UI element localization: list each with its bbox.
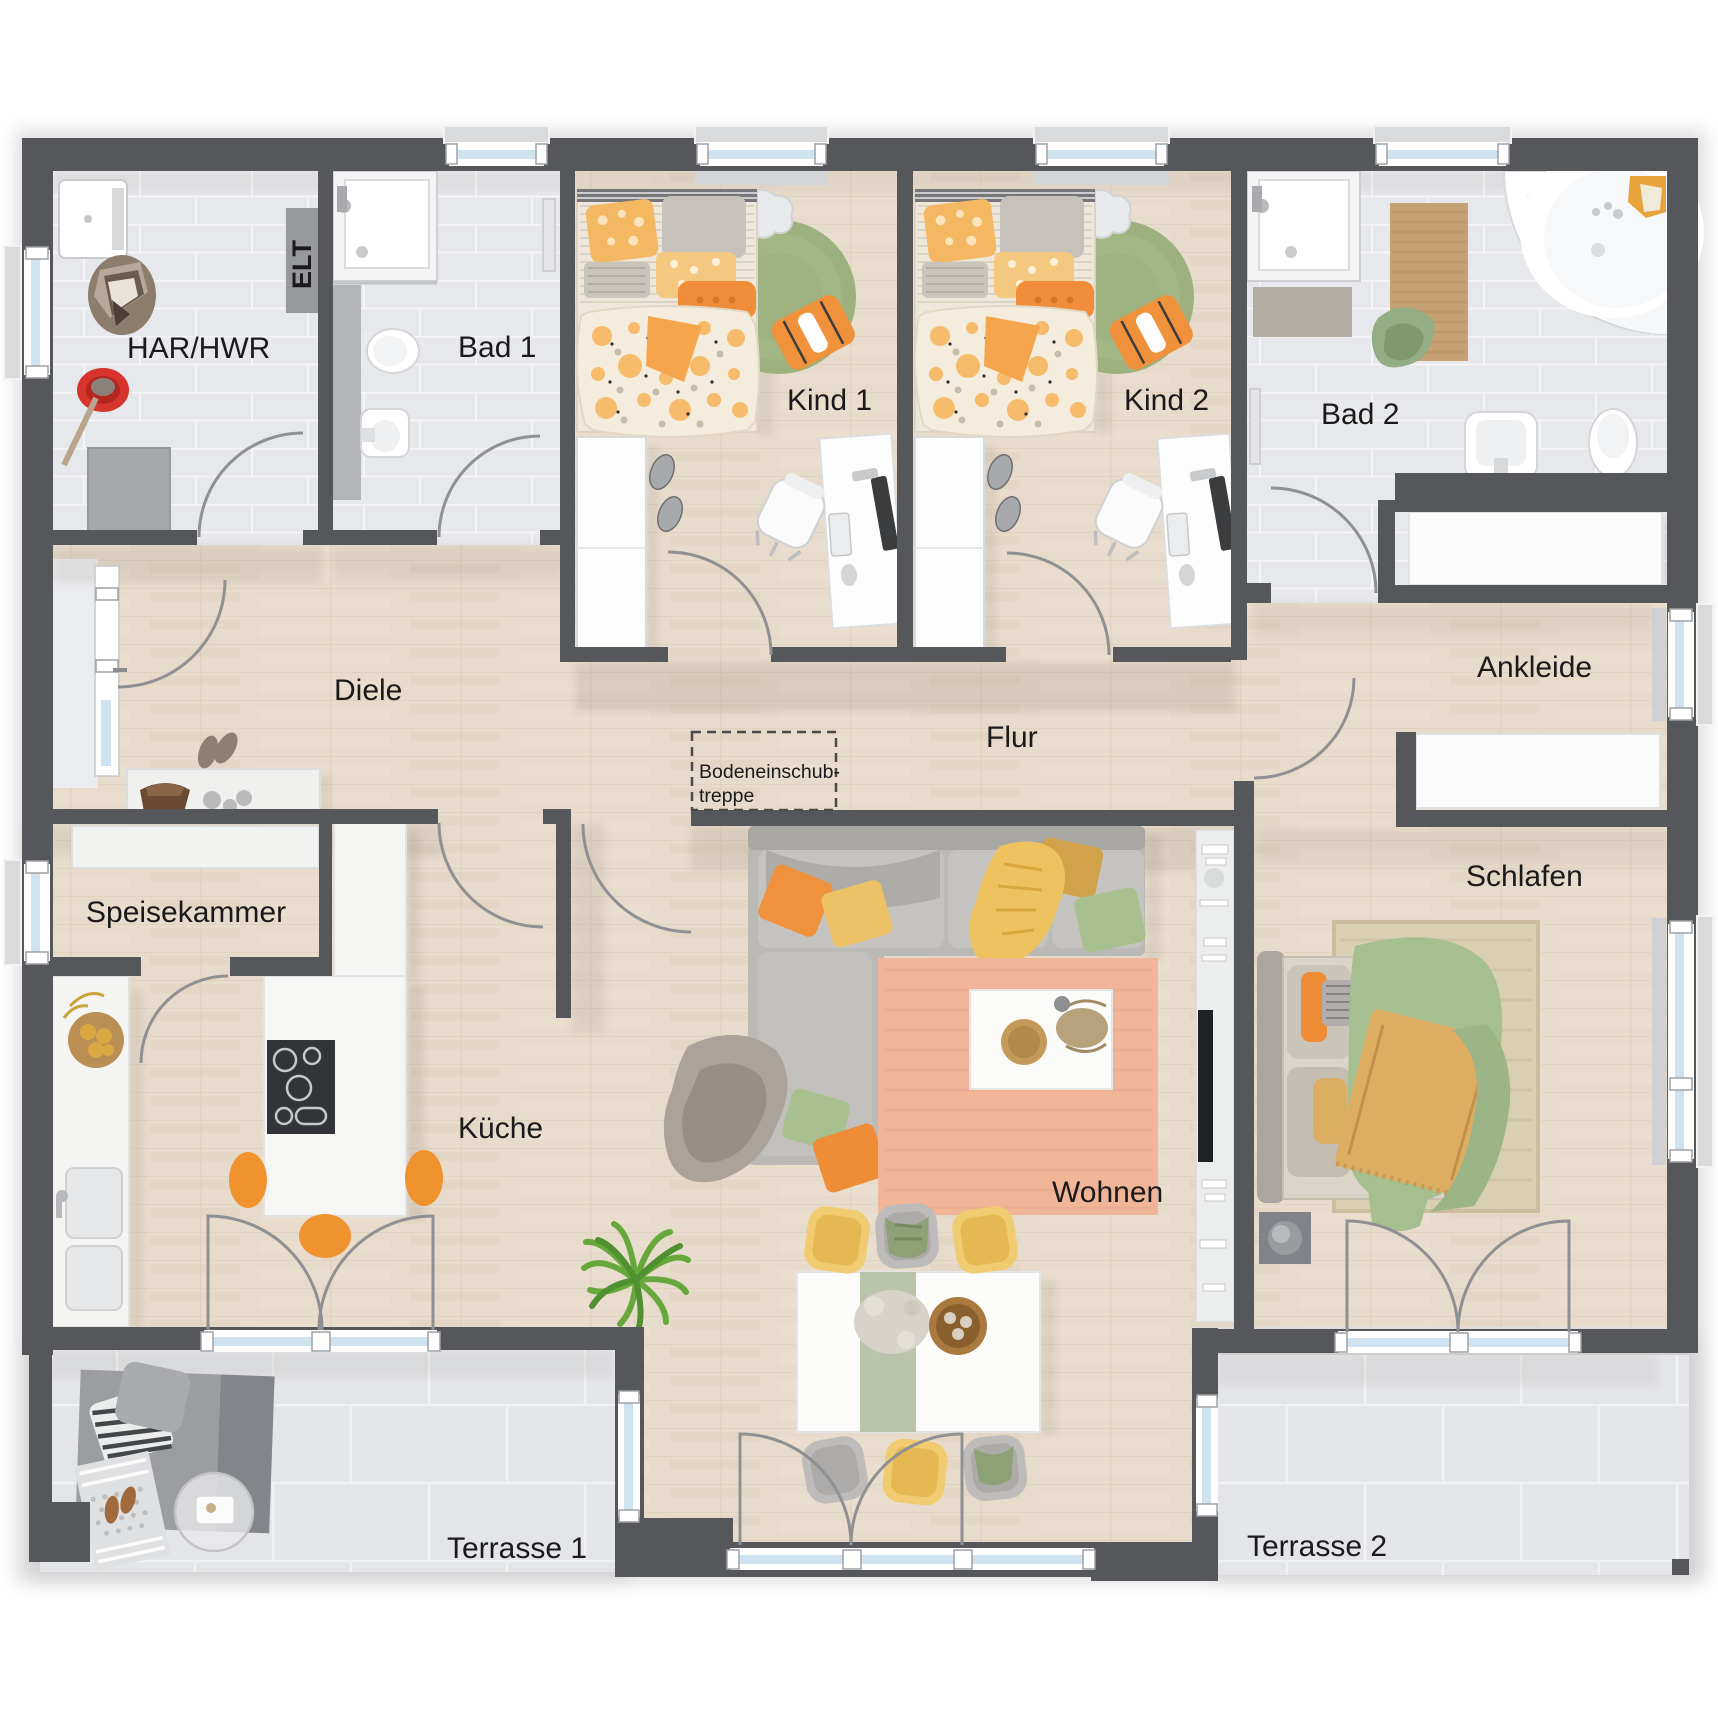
svg-text:Flur: Flur — [986, 721, 1038, 754]
svg-text:Schlafen: Schlafen — [1466, 860, 1583, 893]
svg-text:Bad 2: Bad 2 — [1321, 398, 1399, 431]
svg-text:Diele: Diele — [334, 674, 402, 707]
svg-text:treppe: treppe — [699, 785, 754, 807]
svg-text:Kind 1: Kind 1 — [787, 384, 872, 417]
svg-text:Wohnen: Wohnen — [1052, 1176, 1163, 1209]
svg-text:Ankleide: Ankleide — [1477, 651, 1592, 684]
svg-text:Bad 1: Bad 1 — [458, 331, 536, 364]
svg-text:Speisekammer: Speisekammer — [86, 896, 286, 929]
svg-text:ELT: ELT — [287, 240, 317, 289]
svg-text:Kind 2: Kind 2 — [1124, 384, 1209, 417]
svg-text:Bodeneinschub-: Bodeneinschub- — [699, 761, 840, 783]
svg-text:Küche: Küche — [458, 1112, 543, 1145]
svg-text:Terrasse 1: Terrasse 1 — [447, 1532, 587, 1565]
svg-text:HAR/HWR: HAR/HWR — [127, 332, 270, 365]
svg-text:Terrasse 2: Terrasse 2 — [1247, 1530, 1387, 1563]
